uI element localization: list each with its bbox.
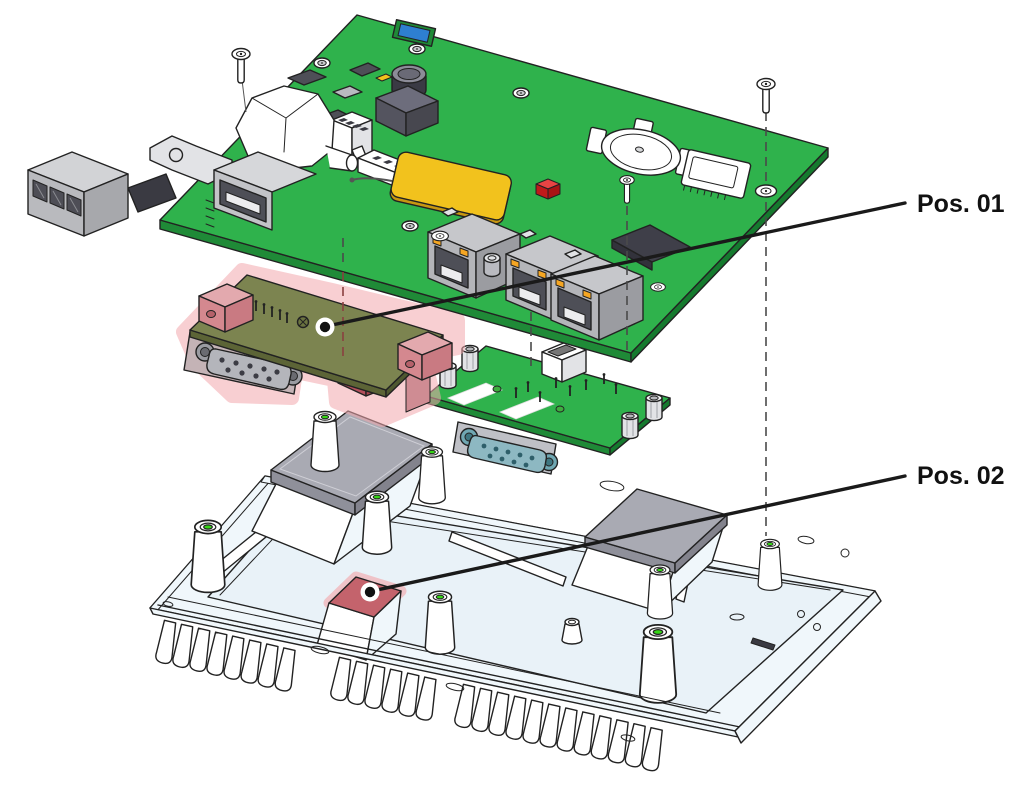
callout-label-pos-02: Pos. 02 — [917, 462, 1005, 490]
exploded-view-diagram: Pos. 01 Pos. 02 — [0, 0, 1024, 798]
led-green — [556, 406, 564, 412]
diagram-canvas: Pos. 01 Pos. 02 — [0, 0, 1024, 798]
leader-dot — [320, 322, 330, 332]
callout-label-pos-01: Pos. 01 — [917, 190, 1005, 218]
board-washer — [756, 185, 777, 197]
mounting-screw-right — [757, 79, 775, 114]
leader-dot — [365, 587, 375, 597]
board-screw — [432, 231, 449, 241]
coax-connector — [484, 254, 500, 277]
io-adapter-board — [426, 342, 670, 474]
led-green — [493, 386, 501, 392]
chassis-hole — [599, 479, 624, 492]
board-screw — [651, 283, 666, 291]
red-jumper — [536, 179, 560, 199]
mounting-screw-left — [232, 49, 250, 84]
terminal-block-connector — [28, 152, 176, 236]
